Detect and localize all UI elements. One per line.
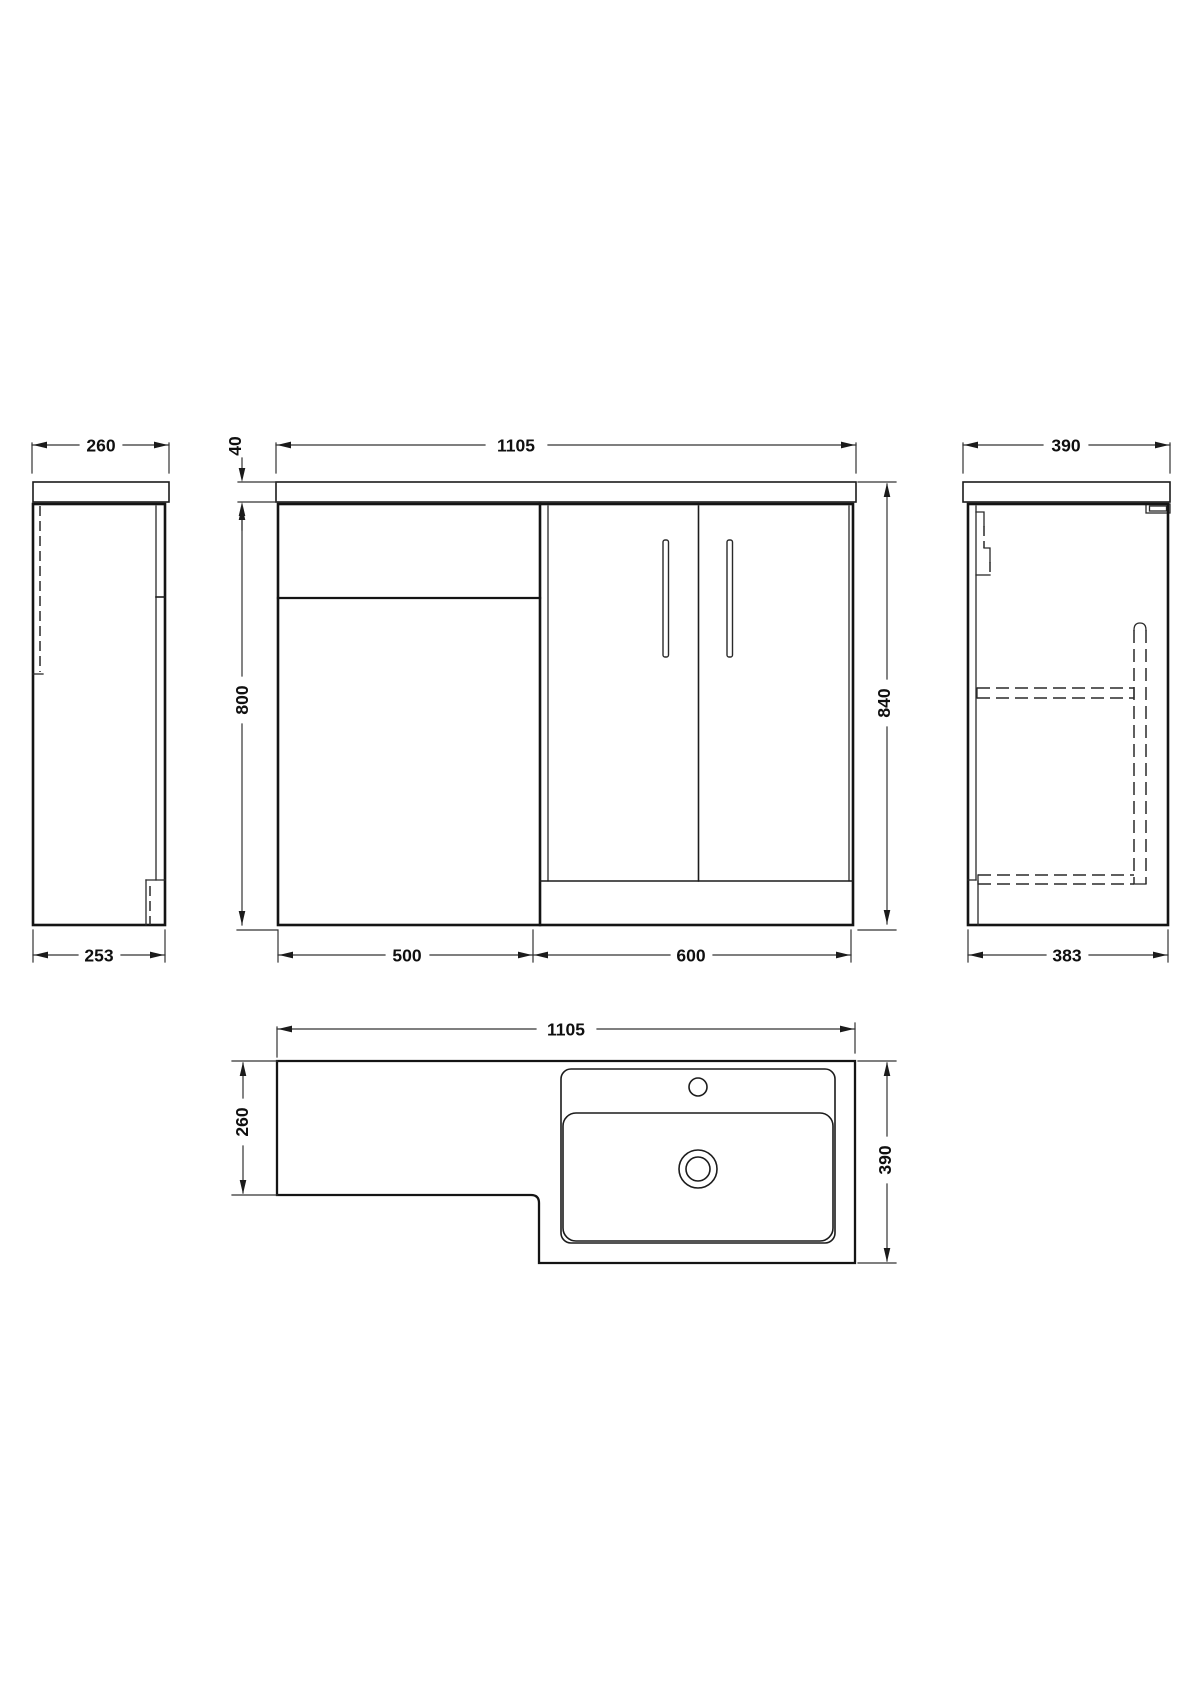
door-handle-left — [663, 540, 669, 657]
dim-label-overall-height: 840 — [874, 688, 894, 717]
dim-label-left-base-width: 253 — [84, 946, 113, 966]
dim-label-front-overall-width: 1105 — [497, 436, 535, 456]
dim-label-left-top-width: 260 — [86, 436, 115, 456]
door-handle-right — [727, 540, 733, 657]
dim-label-right-top-depth: 390 — [1051, 436, 1080, 456]
dim-label-plan-overall-width: 1105 — [547, 1020, 585, 1040]
drawing-background — [0, 0, 1200, 1698]
technical-drawing-page: 260 253 1105 — [0, 0, 1200, 1698]
dim-label-cabinet-height: 800 — [232, 685, 252, 714]
dim-label-plan-left-depth: 260 — [232, 1107, 252, 1136]
dim-label-right-base-depth: 383 — [1052, 946, 1081, 966]
dim-label-worktop-thickness: 40 — [225, 436, 245, 456]
vanity-unit-technical-drawing: 260 253 1105 — [0, 0, 1200, 1698]
dim-label-plan-overall-depth: 390 — [875, 1145, 895, 1174]
dim-label-wc-unit-width: 500 — [392, 946, 421, 966]
dim-label-basin-unit-width: 600 — [676, 946, 705, 966]
